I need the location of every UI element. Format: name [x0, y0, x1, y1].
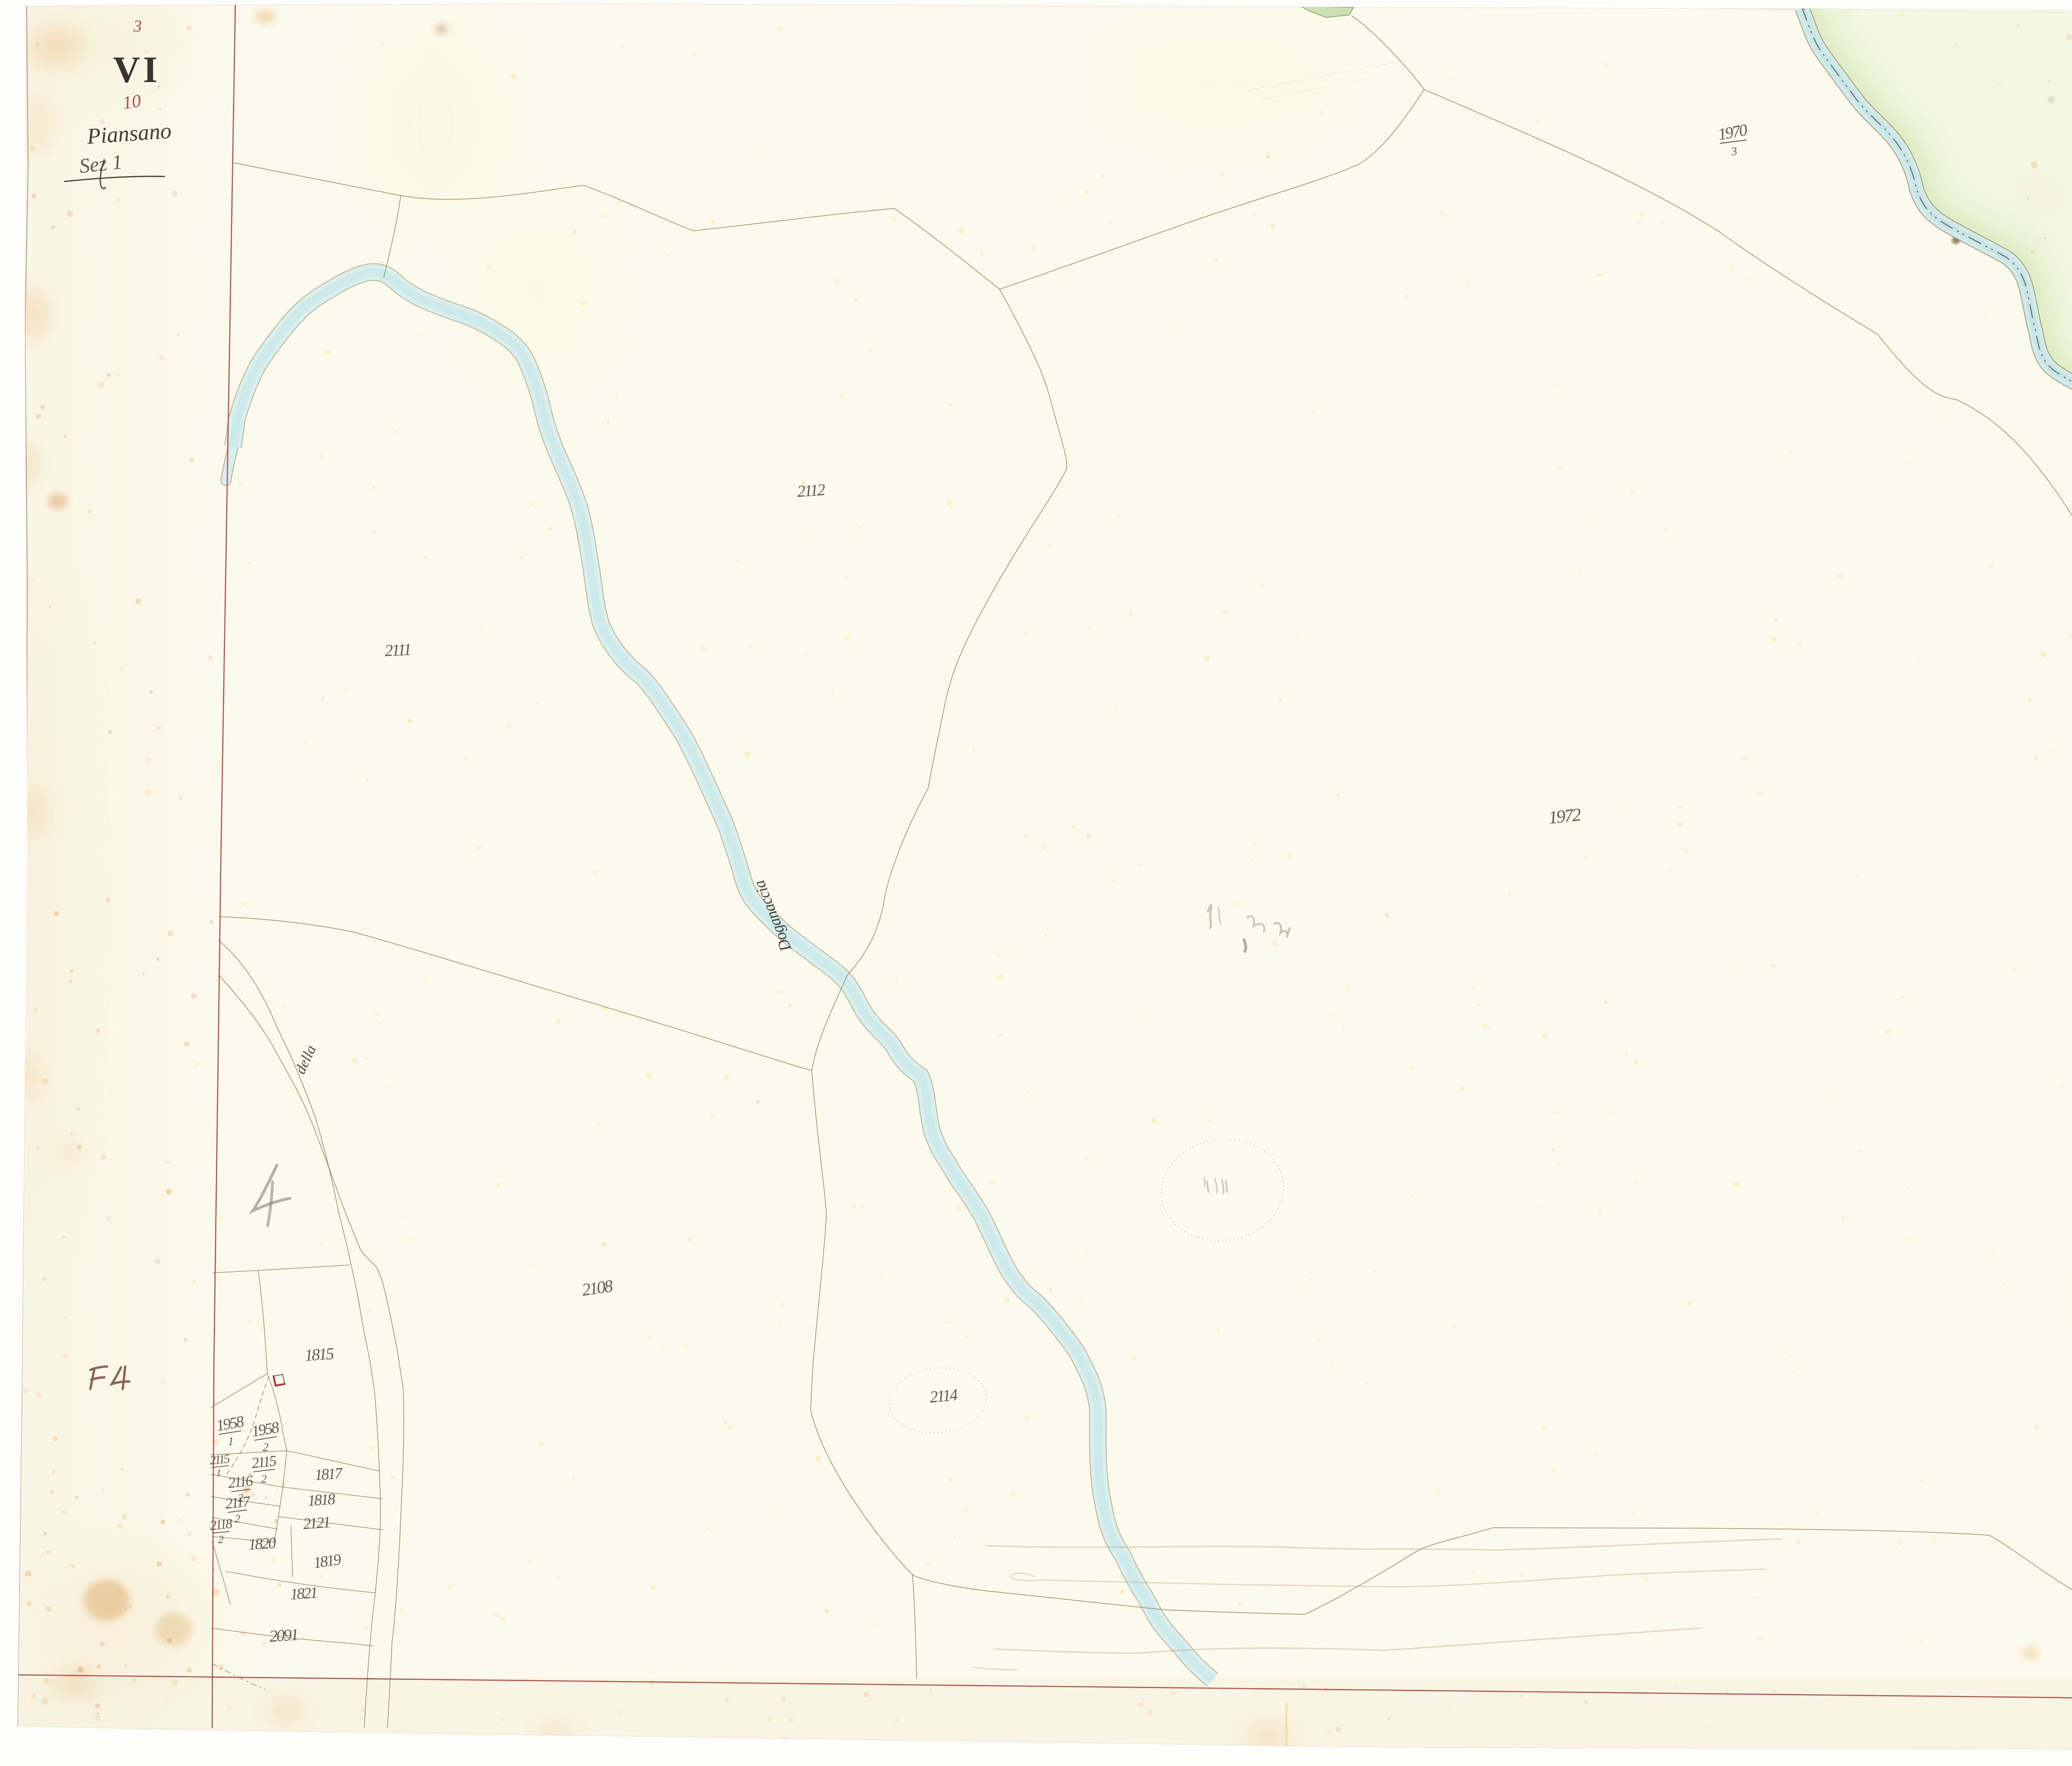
- svg-text:2: 2: [218, 1534, 224, 1546]
- svg-text:2: 2: [263, 1441, 269, 1454]
- svg-text:VI: VI: [113, 49, 160, 90]
- svg-text:1821: 1821: [290, 1584, 317, 1603]
- svg-text:1820: 1820: [248, 1534, 277, 1554]
- svg-text:1818: 1818: [307, 1490, 336, 1510]
- svg-text:2114: 2114: [929, 1385, 959, 1406]
- svg-text:2091: 2091: [269, 1625, 298, 1646]
- svg-text:2121: 2121: [303, 1514, 330, 1533]
- svg-text:2: 2: [235, 1512, 240, 1525]
- svg-text:2117: 2117: [224, 1493, 252, 1512]
- svg-text:10: 10: [121, 90, 142, 113]
- svg-text:1: 1: [228, 1435, 234, 1448]
- svg-text:2115: 2115: [251, 1452, 277, 1471]
- svg-text:1815: 1815: [304, 1344, 334, 1365]
- svg-text:1: 1: [216, 1468, 221, 1478]
- svg-text:1817: 1817: [314, 1464, 344, 1484]
- svg-text:2112: 2112: [796, 480, 826, 501]
- svg-text:2115: 2115: [209, 1452, 231, 1467]
- svg-text:3: 3: [133, 17, 142, 35]
- svg-text:2111: 2111: [384, 640, 411, 660]
- svg-text:2116: 2116: [227, 1472, 254, 1491]
- svg-text:2118: 2118: [209, 1516, 233, 1534]
- svg-text:1972: 1972: [1547, 804, 1582, 828]
- svg-text:2: 2: [261, 1473, 267, 1485]
